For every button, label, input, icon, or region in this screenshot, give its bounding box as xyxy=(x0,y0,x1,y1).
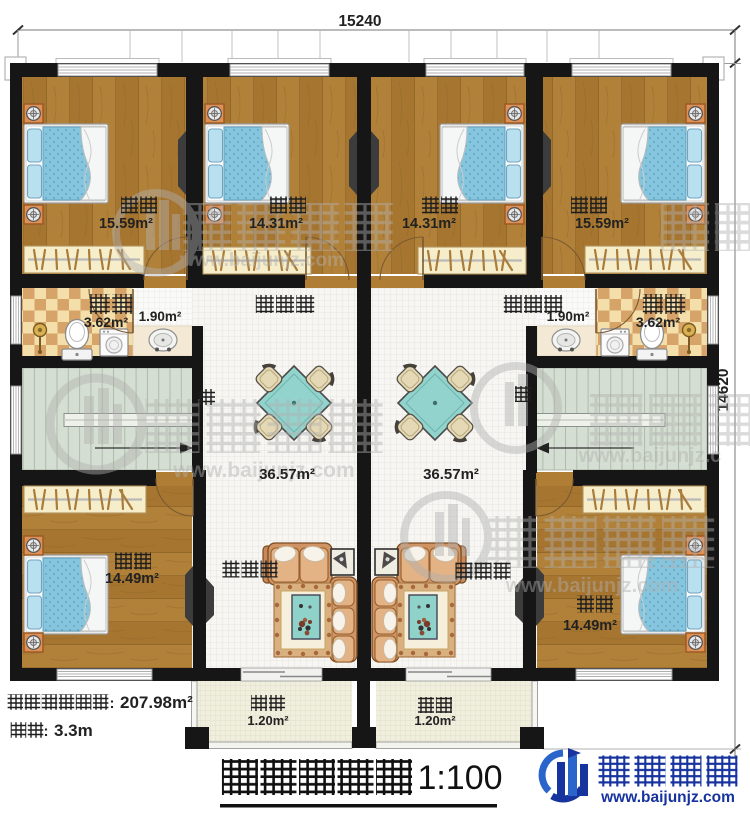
svg-text:36.57m²: 36.57m² xyxy=(259,466,315,483)
svg-text:15.59m²: 15.59m² xyxy=(99,216,153,232)
svg-text:15240: 15240 xyxy=(338,13,381,30)
svg-text:1:100: 1:100 xyxy=(417,759,502,797)
svg-text:14.49m²: 14.49m² xyxy=(105,571,159,587)
svg-text:14.49m²: 14.49m² xyxy=(563,618,617,634)
svg-text:www.baijunjz.com: www.baijunjz.com xyxy=(600,789,735,806)
svg-text:www.baijunjz.com: www.baijunjz.com xyxy=(505,575,679,597)
svg-text:3.62m²: 3.62m² xyxy=(84,314,129,330)
svg-text:www.baijunjz.com: www.baijunjz.com xyxy=(179,250,344,271)
svg-text:3.3m: 3.3m xyxy=(54,721,93,740)
svg-text:1.90m²: 1.90m² xyxy=(139,309,182,324)
svg-text:207.98m²: 207.98m² xyxy=(120,693,193,712)
svg-text:15.59m²: 15.59m² xyxy=(575,216,629,232)
svg-text:14.31m²: 14.31m² xyxy=(402,216,456,232)
svg-text:14.31m²: 14.31m² xyxy=(249,216,303,232)
svg-text:1.20m²: 1.20m² xyxy=(247,713,289,728)
svg-text:3.62m²: 3.62m² xyxy=(636,314,681,330)
svg-text:www.baijunjz.c: www.baijunjz.c xyxy=(578,445,722,467)
svg-text::: : xyxy=(44,723,49,740)
svg-text:36.57m²: 36.57m² xyxy=(423,466,479,483)
svg-text::: : xyxy=(110,695,115,712)
svg-text:1.20m²: 1.20m² xyxy=(414,713,456,728)
